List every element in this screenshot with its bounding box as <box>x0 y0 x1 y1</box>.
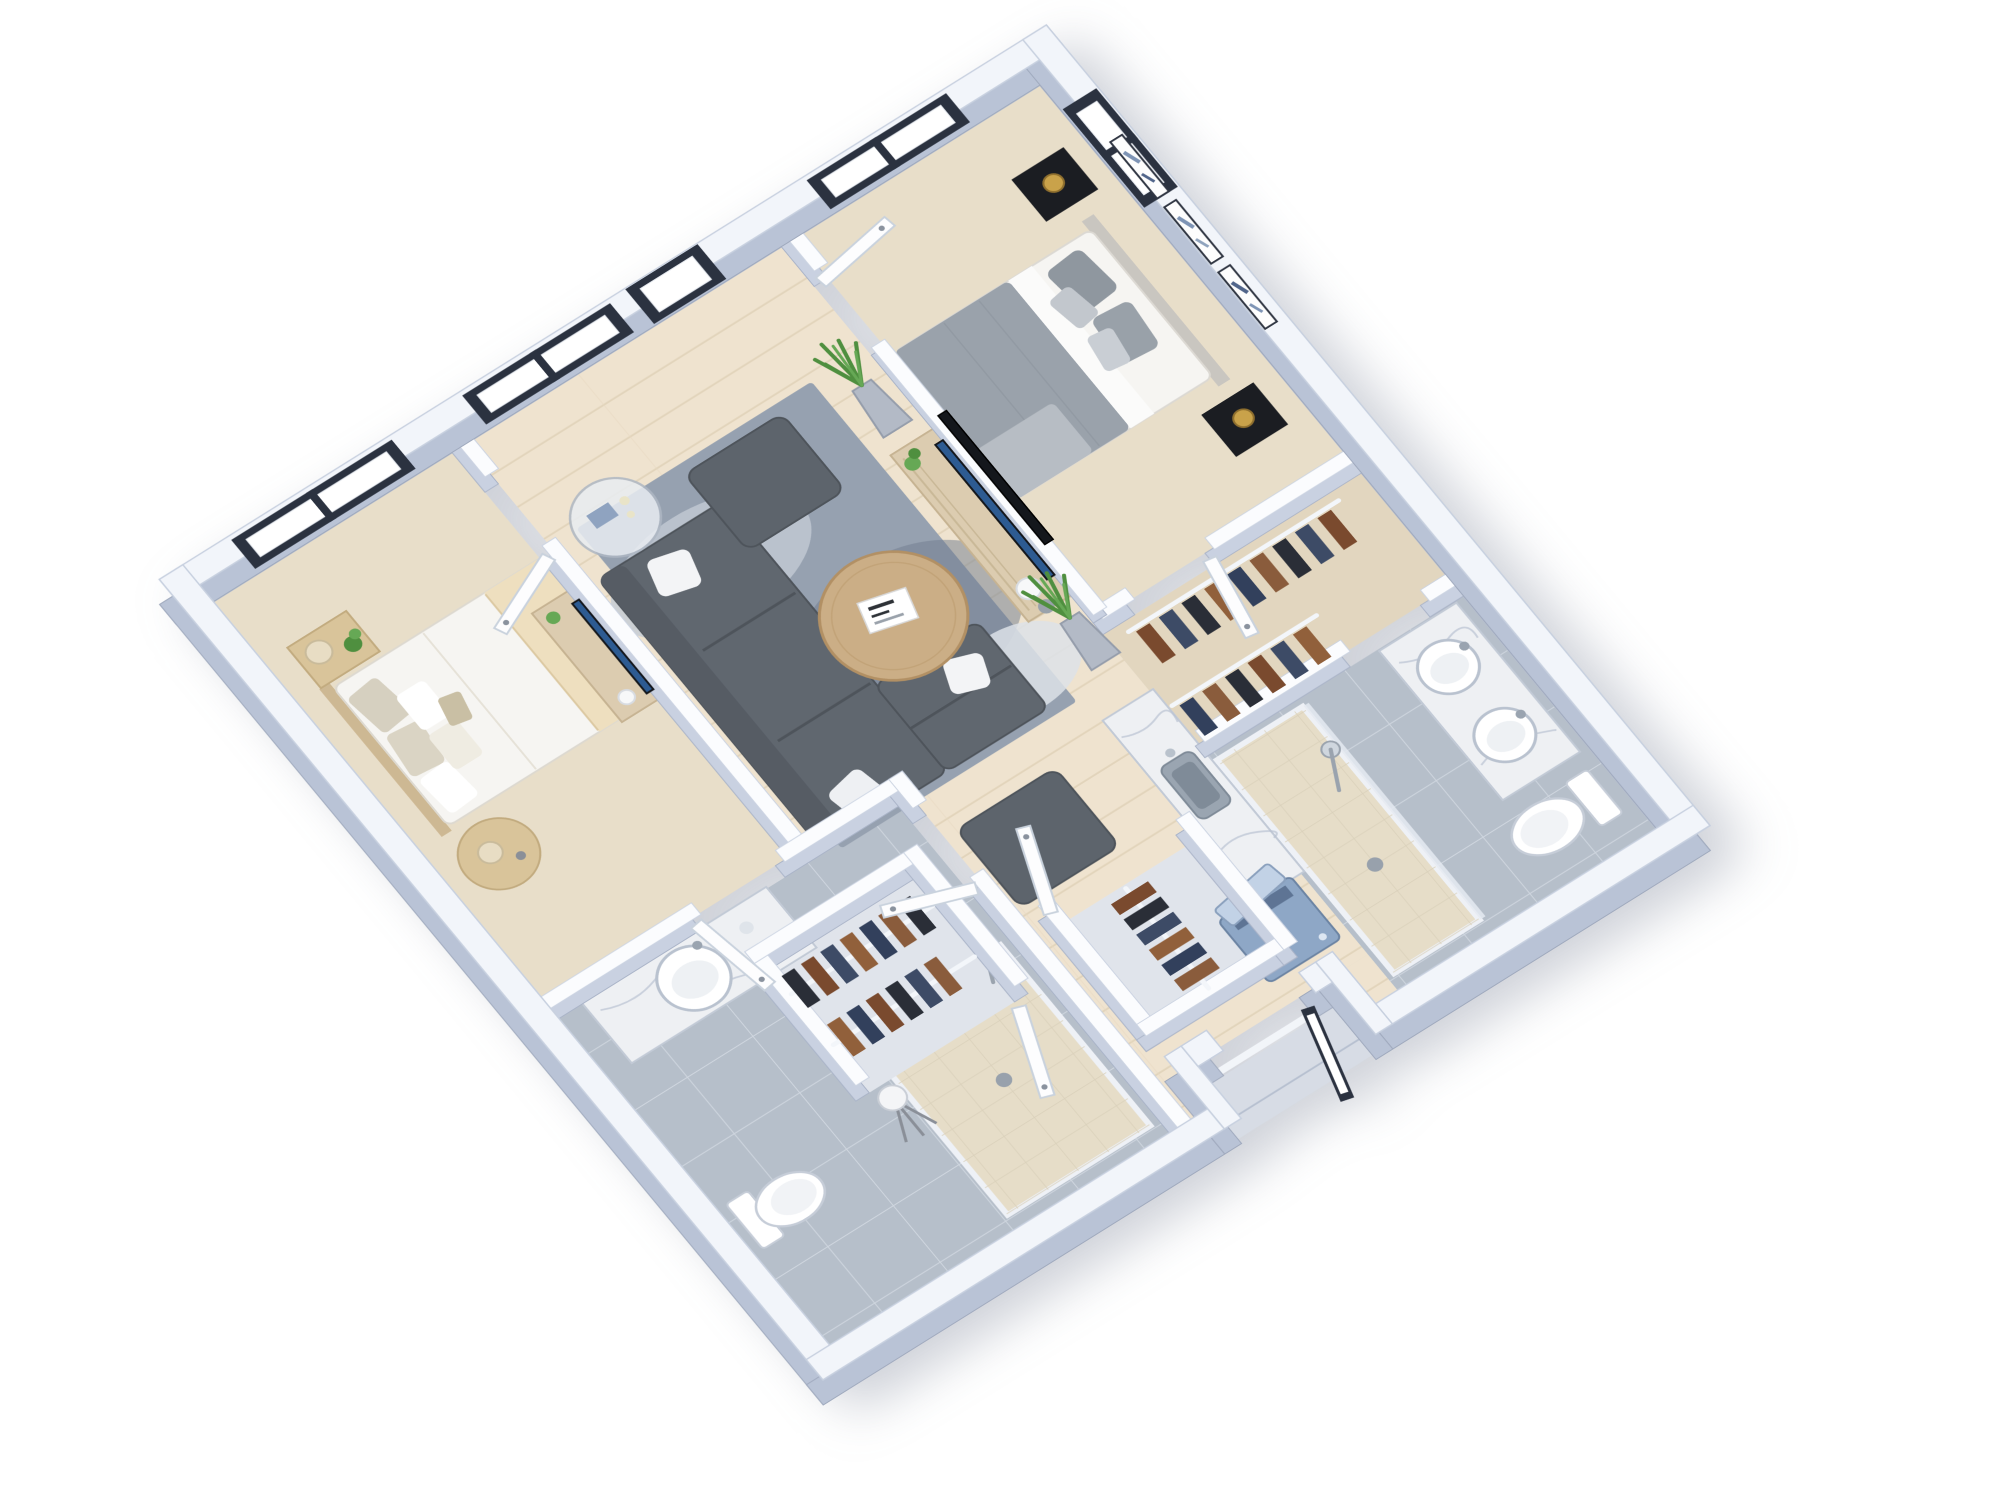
floor-plan-screenshot <box>0 0 2000 1500</box>
floor-plan-3d-render <box>0 0 2000 1500</box>
